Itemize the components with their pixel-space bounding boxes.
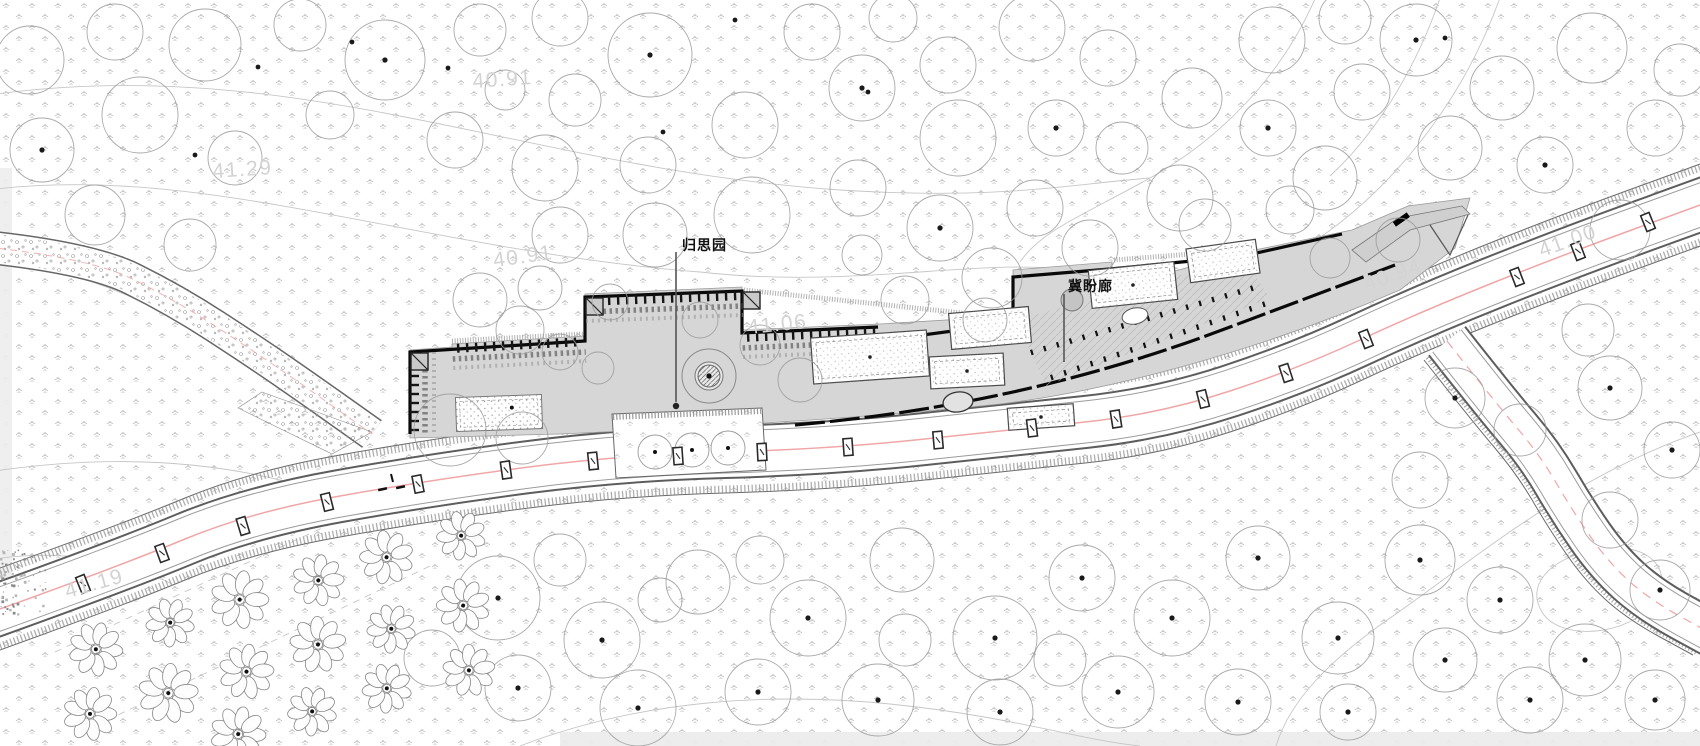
roof-building bbox=[1007, 404, 1074, 431]
elevation-label: 40.91 bbox=[472, 66, 534, 93]
road-marker bbox=[1026, 419, 1037, 437]
road-marker bbox=[673, 447, 683, 465]
roof-building bbox=[929, 353, 1005, 389]
left-margin-strip bbox=[0, 168, 12, 588]
roof-building bbox=[949, 307, 1032, 350]
bottom-margin-strip bbox=[560, 732, 1700, 746]
road-marker bbox=[843, 438, 853, 456]
site-plan-canvas: 41.2940.9140.9141.0640.9441.0041.19 归思园 … bbox=[0, 0, 1700, 746]
roof-building bbox=[811, 330, 930, 384]
site-plan-page: 41.2940.9140.9141.0640.9441.0041.19 归思园 … bbox=[0, 0, 1700, 746]
garden-label: 归思园 bbox=[682, 237, 727, 253]
courtyard-garden bbox=[612, 408, 766, 478]
road-marker bbox=[933, 431, 943, 449]
road-marker bbox=[1110, 410, 1122, 428]
road-marker bbox=[588, 452, 599, 470]
corridor-label: 冀盼廊 bbox=[1068, 278, 1113, 294]
garden-leader-dot bbox=[673, 403, 679, 409]
road-marker bbox=[500, 461, 511, 479]
road-marker bbox=[757, 443, 767, 460]
elevation-label: 41.29 bbox=[212, 156, 274, 183]
